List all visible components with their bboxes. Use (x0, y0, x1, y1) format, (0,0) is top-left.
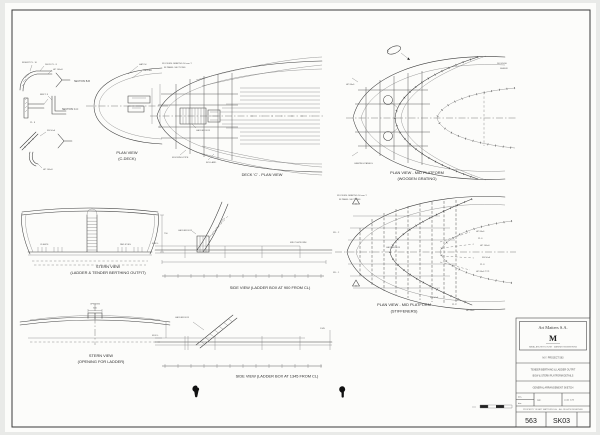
stiffener-spec-1: HP 80x6 (476, 231, 485, 233)
stiffener-spec-8: PL 6 (452, 304, 457, 306)
waterline-label: M.W.L. (152, 335, 159, 337)
waterline-1-label: W.L. 1 (333, 272, 340, 274)
stiffener-spec-7: FB 50x6 (430, 297, 439, 299)
sheet-number: SK03 (553, 418, 570, 425)
field-drawn: drn. (518, 402, 522, 405)
detail-label: HP 100x8 (43, 169, 53, 171)
stern-opening-caption-line2: (OPENING FOR LADDER) (78, 359, 125, 364)
drawing-sheet-svg: INSERT PL. 10 DECK PL. 8 HP 100x8 SECTIO… (0, 0, 600, 435)
project-title-row: M.Y. PROJECT 563 (542, 357, 564, 360)
grating-note-line2: IN PANEL SECTIONS (164, 66, 186, 69)
plan-mid-stiffeners-caption-line2: (STIFFENERS) (391, 309, 419, 314)
detail-label: DECK PL. 8 (45, 64, 58, 66)
opening-label: OPENING (90, 304, 100, 306)
detail-label: BRKT. 8 (40, 94, 49, 96)
stern-berthing-caption-line2: (LADDER & TENDER BERTHING OUTFIT) (70, 270, 146, 275)
drawing-subtitle-row: GENERAL ARRANGEMENT SKETCH (533, 387, 574, 390)
padeyes-label: PAD EYES (120, 243, 131, 246)
plan-c-deck-caption-line1: PLAN VIEW (116, 150, 138, 155)
dim-1345-label: 1345 (320, 328, 326, 330)
stiffener-spec-5: PL 8 (480, 264, 485, 266)
sheer-label: SHEER (500, 68, 508, 70)
drawing-sheet-page: INSERT PL. 10 DECK PL. 8 HP 100x8 SECTIO… (0, 0, 600, 435)
bollard-label: BOLLARD (206, 161, 217, 164)
stiffener-size-label: HP 80x6 (346, 84, 355, 86)
ladder-box-label: LADDER BOX (196, 129, 211, 132)
plan-mid-grating-caption-line1: PLAN VIEW - MID PLATFORM (390, 170, 444, 175)
stern-opening-caption-line1: STERN VIEW (89, 353, 114, 358)
hatch-label: HATCH (139, 63, 147, 66)
stiffener-spec-2: PL 6 (478, 238, 483, 240)
field-approved: app. (537, 400, 542, 402)
company-name: Art Matters S.A. (538, 325, 567, 330)
property-note: PROPERTY OF ART MATTERS S.A. · ALL RIGHT… (523, 408, 583, 411)
waterline-label: M.W.L. (152, 243, 159, 245)
detail-label: PL. 8 (30, 122, 36, 124)
mooring-pipe-label: MOORING PIPE (172, 157, 189, 159)
plan-mid-grating-caption-line2: (WOODEN GRATING) (397, 176, 437, 181)
stiffener-spec-6: HP 80x6 TYP. (476, 271, 490, 273)
stiffener-spec-9: HP 80x6 (466, 310, 475, 312)
plan-mid-stiffeners-caption-line1: PLAN VIEW - MID PLATFORM (377, 302, 431, 307)
project-number: 563 (525, 418, 537, 425)
section-bb-caption: SECTION B-B (74, 80, 90, 83)
company-tagline: NAVAL ARCHITECTURE · MARINE ENGINEERING (529, 346, 578, 349)
stiffener-spec-3: HP 100x6 (480, 245, 490, 247)
deck-edge-label: DK EDGE (497, 63, 507, 65)
field-scale: scale 1:25 (564, 400, 575, 402)
grating-note-line1: WOODEN GRATING 50 mm T. (162, 62, 192, 65)
detail-label: INSERT PL. 10 (22, 62, 38, 64)
waterline-2-label: W.L. 2 (333, 232, 340, 234)
callout-letter: C (387, 50, 389, 53)
cleats-label: CLEATS (40, 243, 49, 246)
field-designed: des. (518, 397, 523, 399)
deck-c-plan-caption: DECK 'C' - PLAN VIEW (242, 172, 283, 177)
ladder-box-label: LADDER BOX (386, 246, 401, 249)
drawing-title-line2: BOW & STERN PLATFORM DETAILS (533, 375, 574, 378)
ladder-label: LADDER (143, 69, 152, 72)
stiff-note-line1: WOODEN GRATING 50 mm T. (337, 194, 367, 197)
company-logo-monogram: M (549, 333, 557, 343)
ladder-box-label: LADDER BOX (175, 316, 190, 319)
stiffener-spec-4: FB 50x6 (482, 257, 491, 259)
plan-c-deck-caption-line2: (C-DECK) (118, 156, 136, 161)
grating-panels-label: GRATING PANELS (354, 162, 373, 165)
detail-label: HP 100x8 (53, 69, 63, 71)
side-view-1345-caption: SIDE VIEW (LADDER BOX AT 1345 FROM CL) (236, 374, 319, 379)
section-cc-caption: SECTION C-C (62, 108, 78, 111)
mid-platform-label: MID PLATFORM (290, 241, 307, 244)
drawing-title-line1: TENDER BERTHING & LADDER OUTFIT (531, 369, 576, 372)
ladder-box-label: LADDER BOX (178, 229, 193, 232)
stiff-note-line2: IN PANEL SECTIONS (339, 198, 361, 201)
side-view-900-caption: SIDE VIEW (LADDER BOX AT 900 FROM CL) (230, 285, 311, 290)
stern-berthing-caption-line1: STERN VIEW (96, 264, 121, 269)
detail-label: FB 50x6 (47, 130, 56, 132)
